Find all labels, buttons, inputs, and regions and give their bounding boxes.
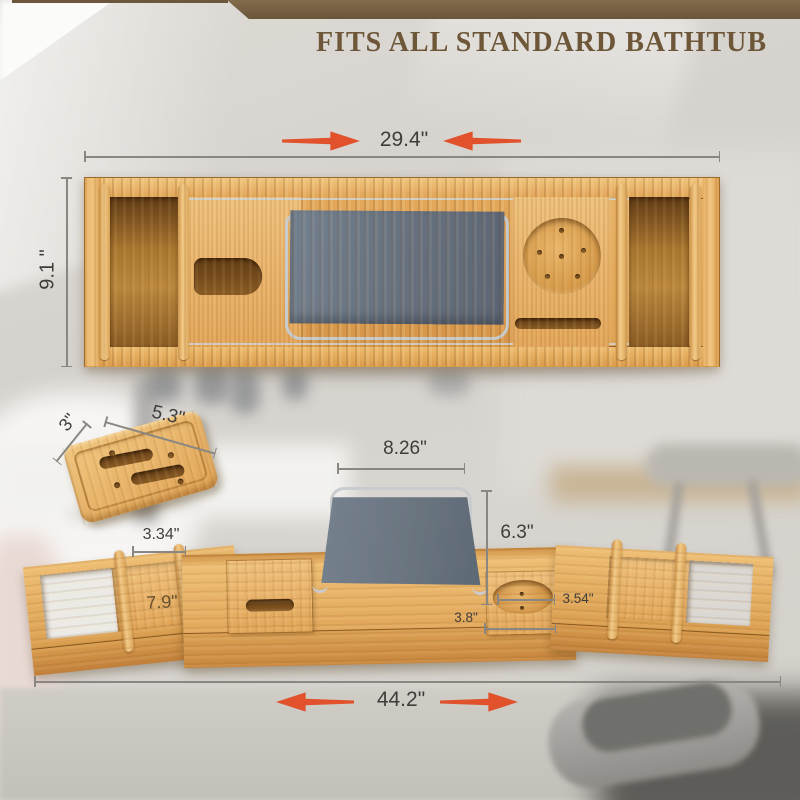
frame-opening bbox=[40, 568, 118, 639]
caddy-top-view bbox=[84, 177, 720, 367]
page-title: FITS ALL STANDARD BATHTUB bbox=[316, 27, 786, 59]
phone-slot-ext bbox=[246, 599, 294, 612]
drain-hole bbox=[545, 274, 550, 279]
drain-hole bbox=[520, 606, 524, 610]
bg-side-table bbox=[646, 444, 800, 486]
dim-line-stand-width bbox=[337, 468, 465, 470]
frame-front-face bbox=[550, 623, 769, 662]
header-banner bbox=[227, 0, 800, 19]
drain-hole bbox=[520, 592, 524, 596]
banner-top-line bbox=[12, 0, 228, 3]
accessory-slot bbox=[515, 318, 601, 329]
dim-line-extended-width bbox=[34, 681, 781, 683]
dim-cup-diameter: 3.54" bbox=[556, 591, 600, 606]
dim-line-top-depth bbox=[66, 177, 68, 367]
dim-cup-width: 3.8" bbox=[446, 610, 486, 625]
left-extension-recess bbox=[110, 197, 179, 347]
book-stand-fabric-ext bbox=[318, 485, 482, 587]
dim-line-top-width bbox=[84, 156, 720, 158]
left-rail bbox=[178, 184, 189, 360]
drain-hole bbox=[559, 254, 564, 259]
dim-stand-width: 8.26" bbox=[363, 438, 447, 460]
right-rail bbox=[616, 184, 627, 360]
phone-slot bbox=[194, 258, 262, 295]
dim-line-rail-gap bbox=[132, 551, 186, 553]
dim-line-cup-width bbox=[484, 628, 556, 630]
drain-hole bbox=[559, 228, 564, 233]
dim-tray-inner: 7.9" bbox=[135, 591, 188, 615]
right-rail bbox=[690, 184, 701, 360]
book-stand-fabric bbox=[290, 210, 505, 324]
drain-hole bbox=[537, 250, 542, 255]
dim-stand-height: 6.3" bbox=[492, 522, 542, 544]
tray-right-plank bbox=[703, 178, 719, 366]
product-dimension-infographic: FITS ALL STANDARD BATHTUB bbox=[0, 0, 800, 800]
left-rail bbox=[99, 184, 110, 360]
dim-top-depth: 9.1 " bbox=[37, 238, 60, 302]
drain-hole bbox=[575, 274, 580, 279]
dim-extended-width: 44.2" bbox=[358, 688, 444, 712]
right-extension-recess bbox=[629, 197, 689, 347]
dim-line-stand-height bbox=[486, 490, 488, 605]
drain-hole bbox=[581, 248, 586, 253]
phone-slot-panel-ext bbox=[227, 559, 312, 633]
cup-holder-recess bbox=[523, 218, 601, 294]
dim-line-cup-diameter bbox=[497, 599, 555, 601]
dim-top-width: 29.4" bbox=[364, 128, 444, 152]
frame-opening bbox=[686, 560, 753, 625]
dim-rail-gap: 3.34" bbox=[128, 526, 194, 544]
